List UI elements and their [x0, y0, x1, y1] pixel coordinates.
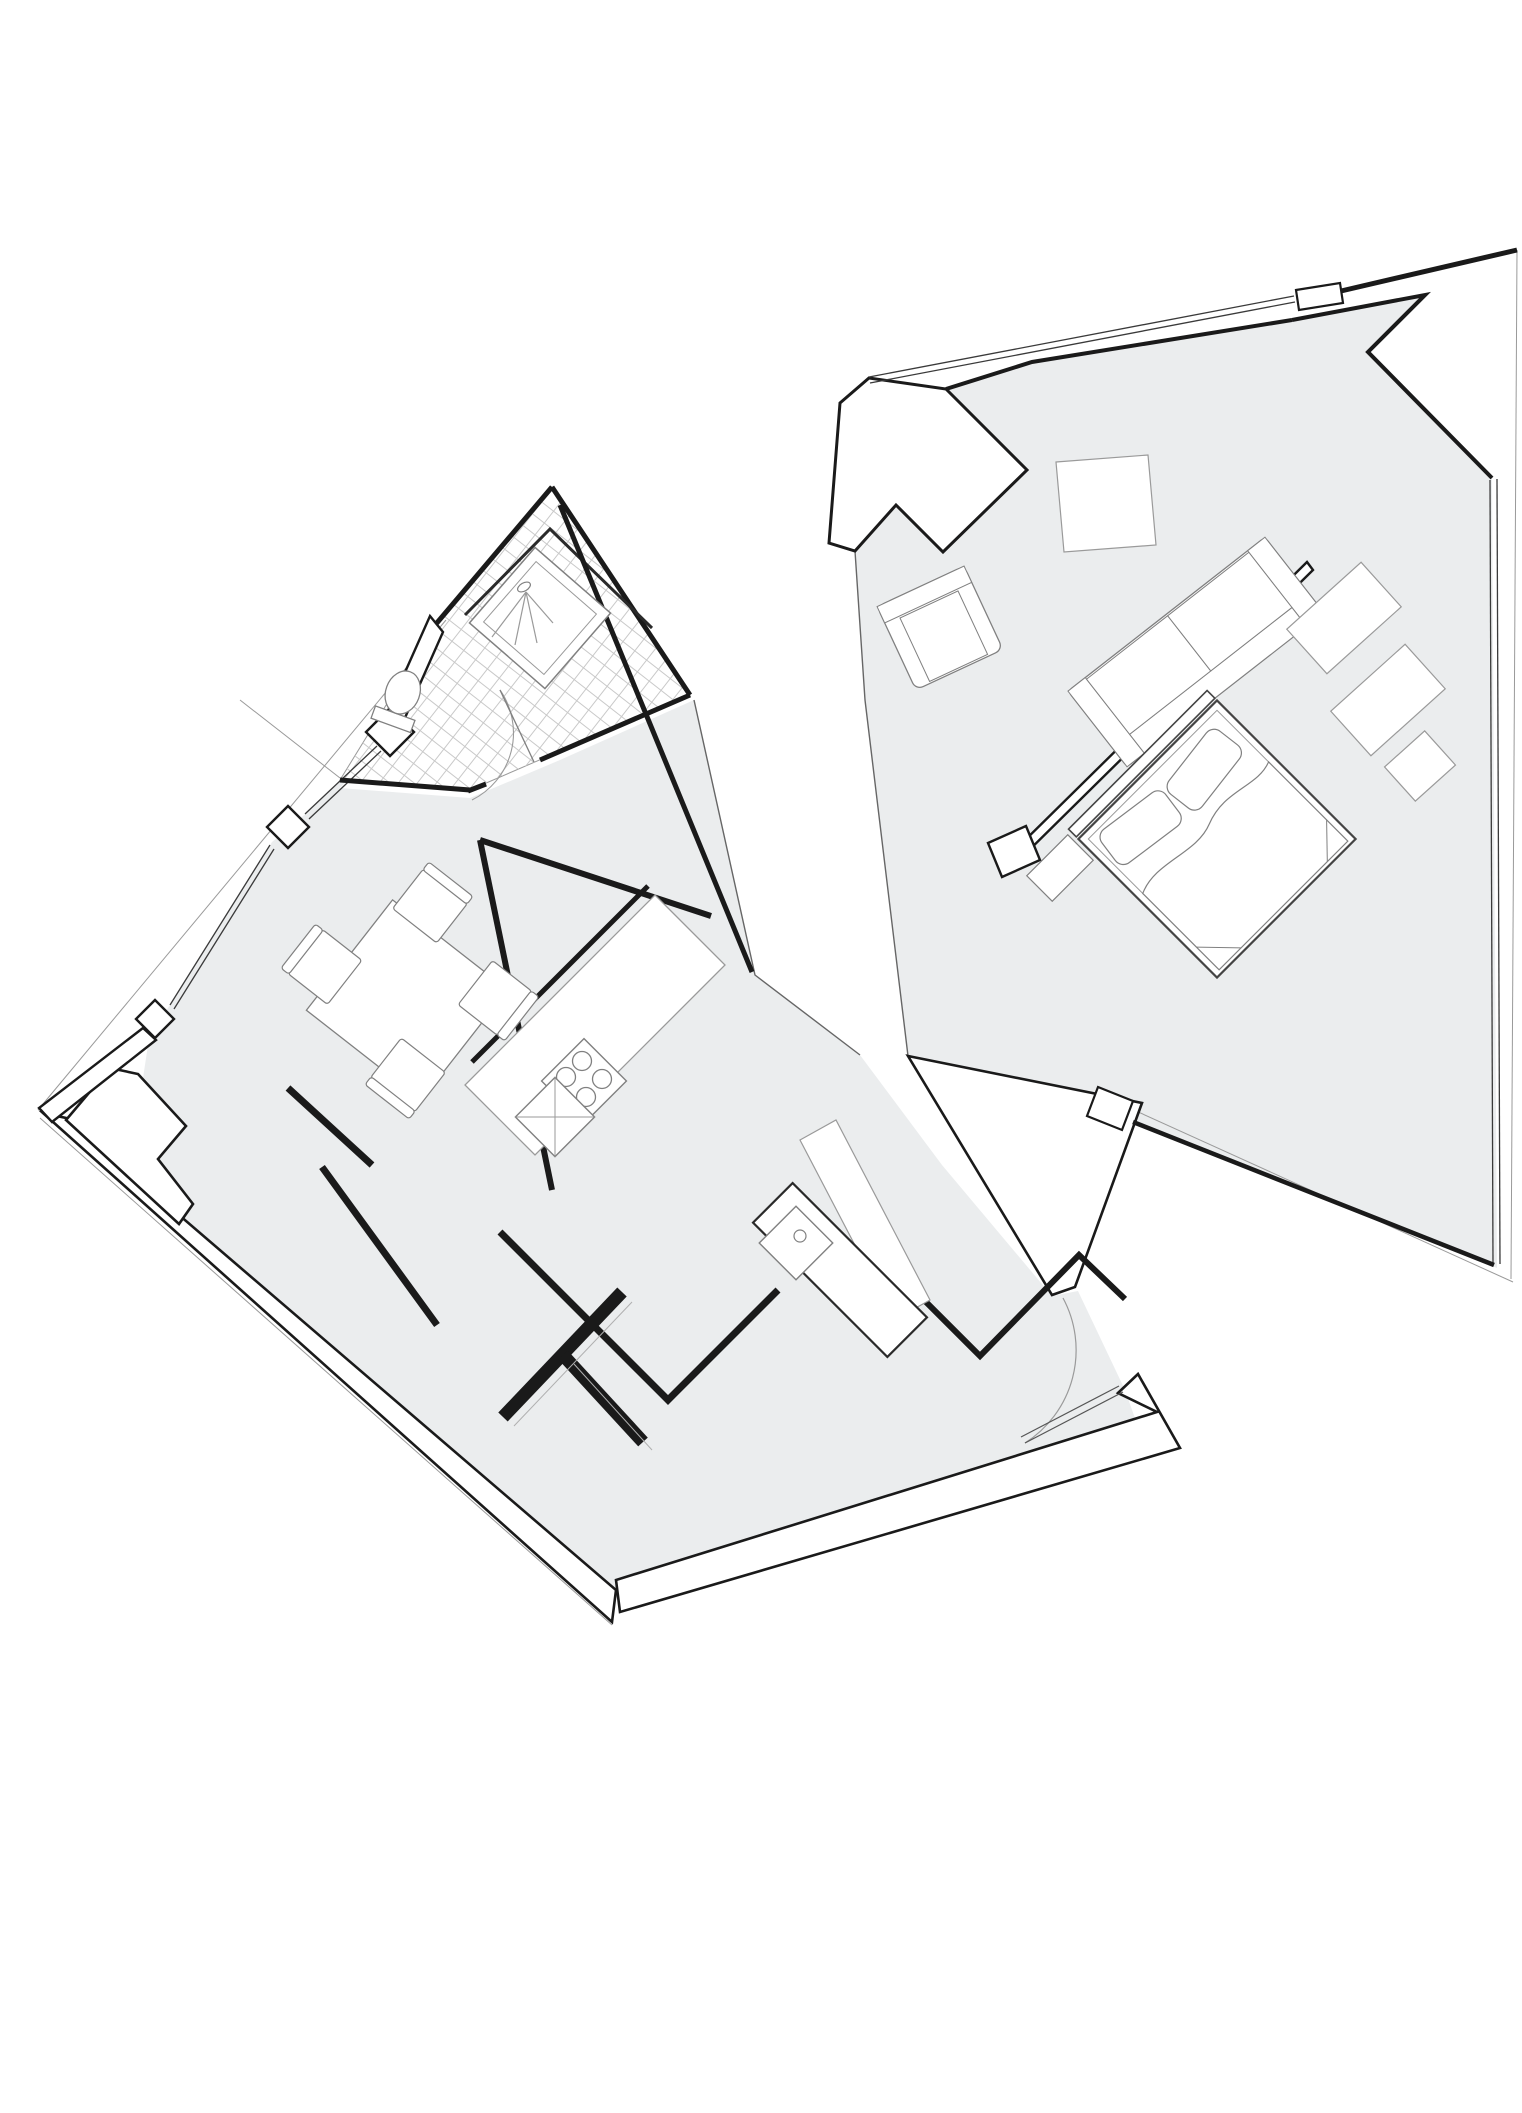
floor-plan-drawing: [0, 0, 1522, 2113]
tile-line: [101, 321, 360, 652]
bedroom-rug-table: [1056, 455, 1156, 552]
tile-line: [172, 377, 431, 708]
tile-line: [160, 368, 419, 699]
tile-line: [183, 386, 442, 717]
tile-line: [89, 312, 348, 643]
floor-plan-page: [0, 0, 1522, 2113]
outer-contour-right: [1511, 250, 1517, 1279]
tile-line: [136, 349, 395, 680]
window-bedroom-right-2: [1497, 479, 1500, 1264]
wall-bedroom-top-outer: [1341, 250, 1517, 291]
tile-line: [537, 289, 868, 548]
wall-window-step-block: [1296, 283, 1343, 310]
tile-line: [112, 331, 371, 662]
tile-line: [546, 277, 877, 536]
tile-line: [53, 284, 312, 615]
tile-line: [148, 358, 407, 689]
tile-line: [528, 301, 859, 560]
tile-line: [124, 340, 383, 671]
outer-contour-bath-wedge: [240, 700, 340, 778]
tile-line: [65, 294, 324, 625]
tile-line: [77, 303, 336, 634]
